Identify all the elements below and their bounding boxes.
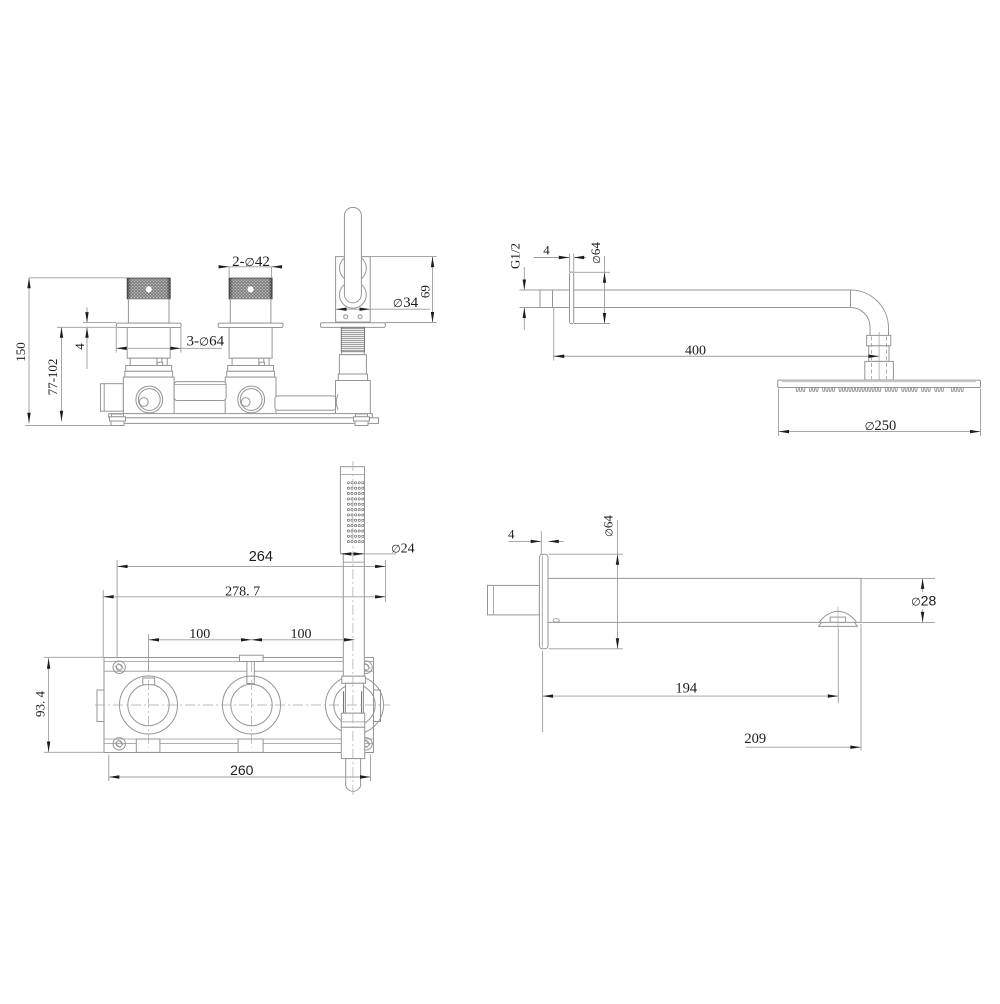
svg-text:69: 69 bbox=[418, 285, 433, 298]
svg-text:400: 400 bbox=[685, 344, 706, 359]
svg-text:260: 260 bbox=[230, 762, 254, 778]
svg-text:4: 4 bbox=[72, 343, 87, 350]
svg-text:150: 150 bbox=[13, 342, 28, 362]
svg-text:264: 264 bbox=[249, 549, 273, 565]
svg-text:278. 7: 278. 7 bbox=[225, 585, 260, 600]
svg-text:G1/2: G1/2 bbox=[508, 243, 523, 269]
svg-text:∅24: ∅24 bbox=[391, 542, 415, 557]
svg-text:4: 4 bbox=[543, 243, 550, 258]
svg-text:3-∅64: 3-∅64 bbox=[186, 333, 224, 349]
svg-text:∅34: ∅34 bbox=[393, 295, 419, 311]
svg-text:209: 209 bbox=[744, 731, 766, 747]
svg-text:100: 100 bbox=[291, 627, 312, 642]
svg-text:∅250: ∅250 bbox=[865, 418, 897, 434]
svg-text:100: 100 bbox=[189, 627, 210, 642]
svg-text:93. 4: 93. 4 bbox=[33, 691, 48, 718]
svg-text:194: 194 bbox=[675, 680, 698, 696]
svg-text:77-102: 77-102 bbox=[45, 359, 60, 396]
svg-text:4: 4 bbox=[508, 526, 515, 541]
svg-text:2-∅42: 2-∅42 bbox=[232, 254, 270, 270]
